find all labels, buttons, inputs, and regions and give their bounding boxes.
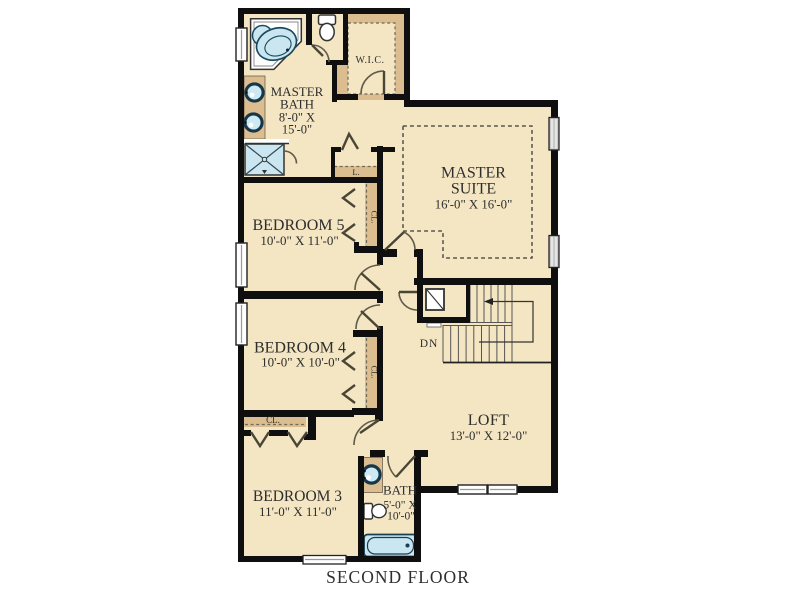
svg-text:L.: L. xyxy=(352,167,359,177)
svg-text:16'-0" X 16'-0": 16'-0" X 16'-0" xyxy=(435,198,513,212)
svg-text:W.I.C.: W.I.C. xyxy=(355,55,384,66)
svg-text:BATH: BATH xyxy=(383,483,417,498)
svg-text:15'-0": 15'-0" xyxy=(282,123,312,137)
svg-text:MASTER: MASTER xyxy=(441,165,506,182)
svg-text:10'-0" X 11'-0": 10'-0" X 11'-0" xyxy=(260,233,338,248)
svg-text:BEDROOM 5: BEDROOM 5 xyxy=(252,217,344,234)
svg-text:CL.: CL. xyxy=(370,366,380,379)
svg-text:BATH: BATH xyxy=(280,97,314,112)
svg-text:10'-0": 10'-0" xyxy=(387,511,415,523)
svg-text:10'-0" X 10'-0": 10'-0" X 10'-0" xyxy=(261,355,340,370)
svg-text:CL.: CL. xyxy=(370,211,380,224)
svg-text:LOFT: LOFT xyxy=(468,412,510,429)
svg-text:SUITE: SUITE xyxy=(451,181,496,198)
svg-text:BEDROOM 3: BEDROOM 3 xyxy=(253,488,342,505)
svg-text:11'-0" X 11'-0": 11'-0" X 11'-0" xyxy=(259,504,337,519)
svg-text:SECOND FLOOR: SECOND FLOOR xyxy=(326,567,470,587)
svg-text:CL.: CL. xyxy=(266,415,280,425)
svg-text:13'-0" X 12'-0": 13'-0" X 12'-0" xyxy=(450,429,528,443)
svg-text:DN: DN xyxy=(420,338,439,350)
